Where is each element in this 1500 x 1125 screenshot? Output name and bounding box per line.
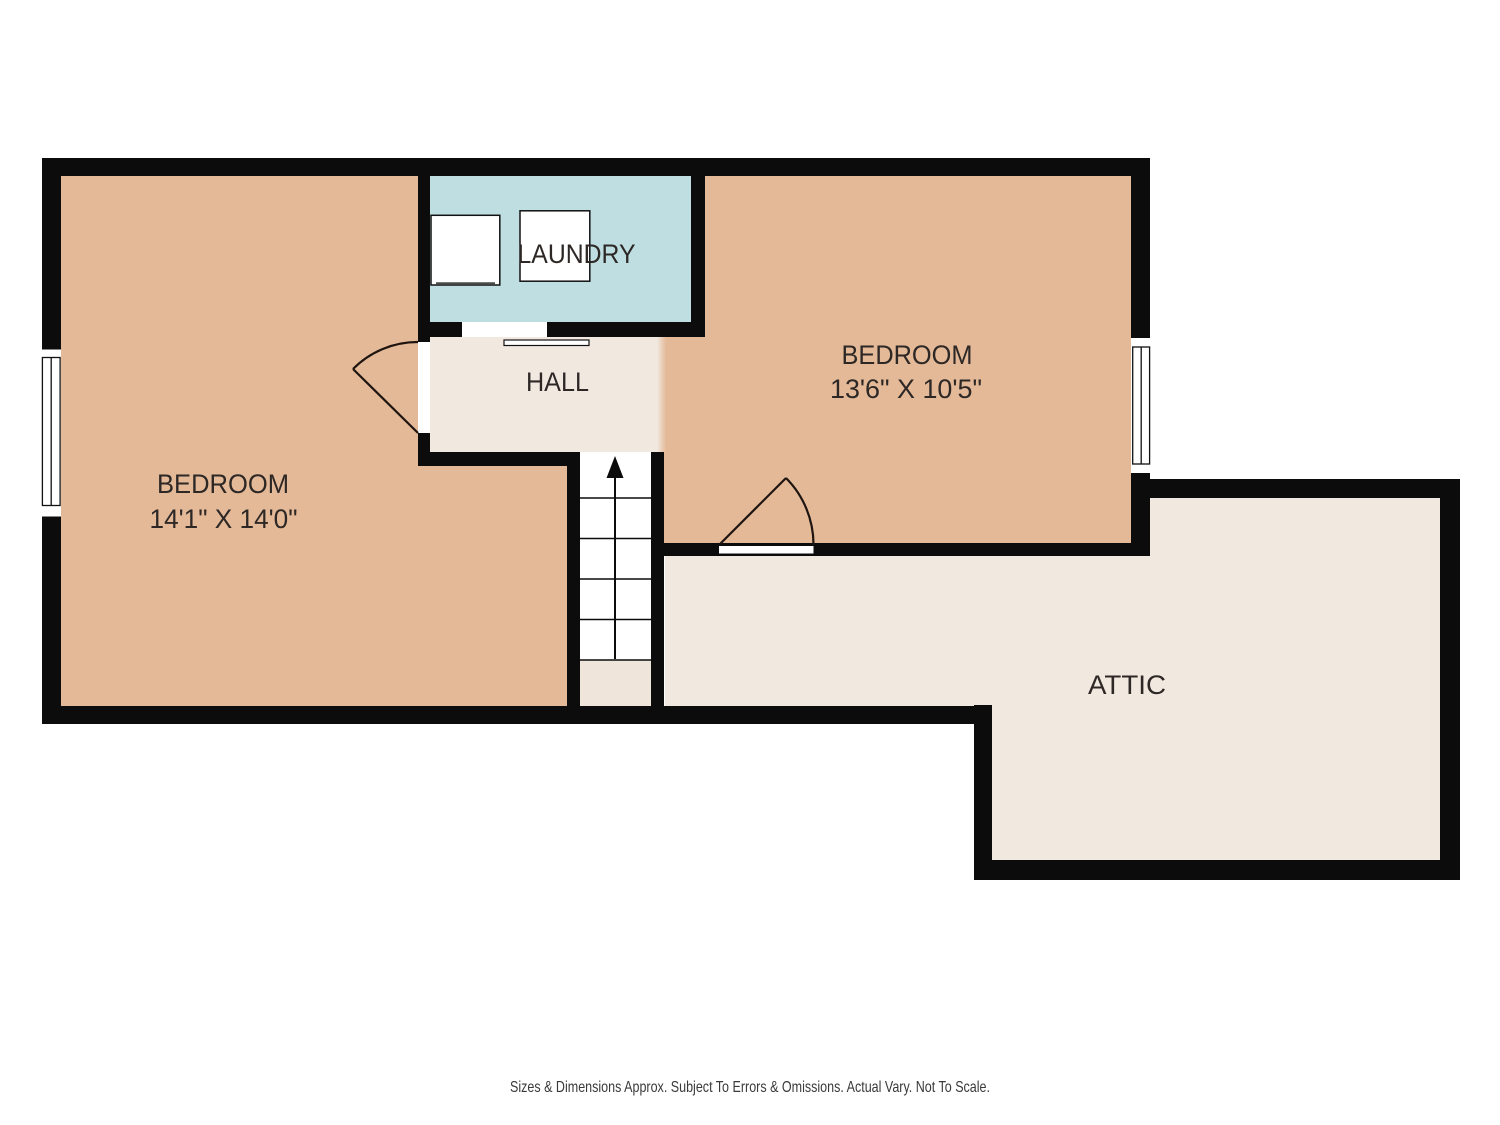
svg-text:Sizes & Dimensions Approx. Sub: Sizes & Dimensions Approx. Subject To Er…	[510, 1079, 990, 1096]
svg-text:BEDROOM: BEDROOM	[157, 469, 289, 499]
svg-text:ATTIC: ATTIC	[1088, 670, 1166, 700]
svg-text:HALL: HALL	[526, 367, 589, 397]
svg-text:BEDROOM: BEDROOM	[842, 340, 973, 370]
svg-text:14'1" X 14'0": 14'1" X 14'0"	[150, 504, 298, 534]
svg-text:13'6" X 10'5": 13'6" X 10'5"	[830, 374, 982, 404]
svg-text:LAUNDRY: LAUNDRY	[518, 239, 636, 269]
